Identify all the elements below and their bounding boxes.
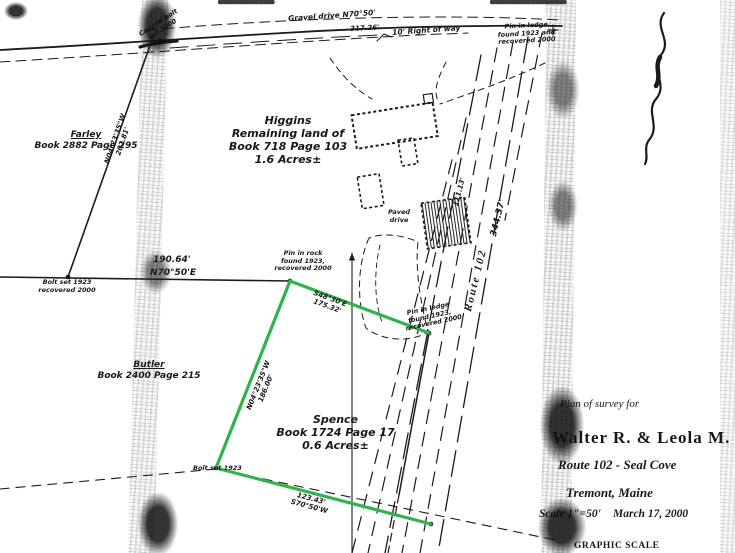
north-line-distance: 190.64' — [153, 255, 191, 266]
title-plan-of-survey: Plan of survey for — [560, 398, 639, 410]
survey-plan-page: Higgins Remaining land of Book 718 Page … — [0, 0, 735, 553]
driveway-dashes — [330, 58, 545, 339]
note-pin-rock: Pin in rock found 1923, recovered 2000 — [272, 250, 334, 273]
parcel-label-spence: Spence Book 1724 Page 17 0.6 Acres± — [258, 413, 413, 452]
note-bolt-sw: Bolt set 1923 — [193, 465, 242, 473]
note-pin-ledge-top: Pin in ledge found 1923 and recovered 20… — [497, 21, 556, 47]
title-graphic-scale: GRAPHIC SCALE — [574, 541, 659, 551]
monument-markers — [66, 38, 434, 526]
row-distance: 317.26' — [350, 23, 380, 33]
parcel-label-butler: Butler Book 2400 Page 215 — [88, 360, 210, 381]
margin-squiggle — [645, 13, 665, 164]
parcel-label-higgins: Higgins Remaining land of Book 718 Page … — [200, 114, 376, 166]
garage-outline — [421, 197, 471, 249]
title-route: Route 102 - Seal Cove — [558, 457, 676, 473]
note-paved-drive: Paved drive — [386, 209, 412, 224]
title-date: March 17, 2000 — [613, 508, 688, 520]
note-bolt-nw: Bolt set 1923 recovered 2000 — [36, 279, 98, 294]
title-town: Tremont, Maine — [566, 485, 653, 501]
road-top — [0, 2, 566, 62]
title-owner-name: Walter R. & Leola M. Higgins — [552, 428, 735, 448]
north-line-bearing: N70°50'E — [150, 268, 196, 279]
title-scale: Scale 1"=50' — [539, 508, 601, 520]
